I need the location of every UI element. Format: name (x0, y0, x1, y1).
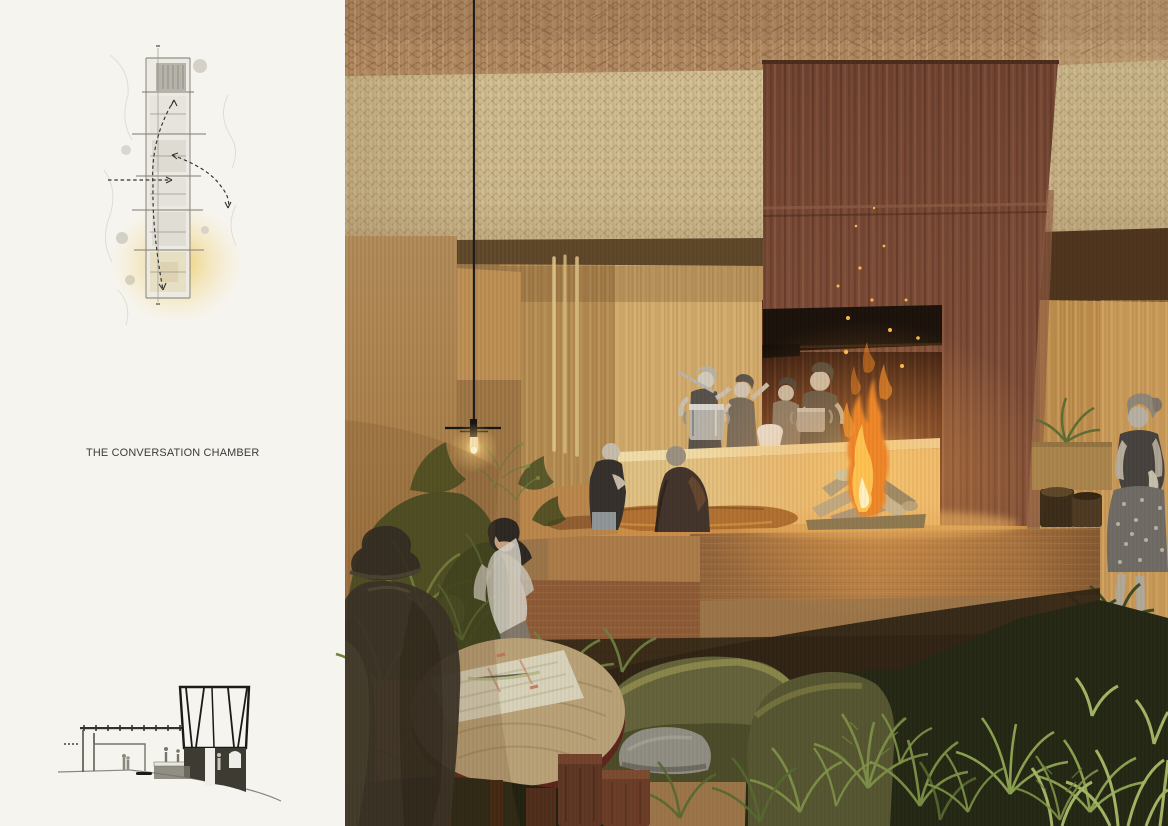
svg-text:THE CONVERSATION CHAMBER: THE CONVERSATION CHAMBER (86, 447, 259, 459)
